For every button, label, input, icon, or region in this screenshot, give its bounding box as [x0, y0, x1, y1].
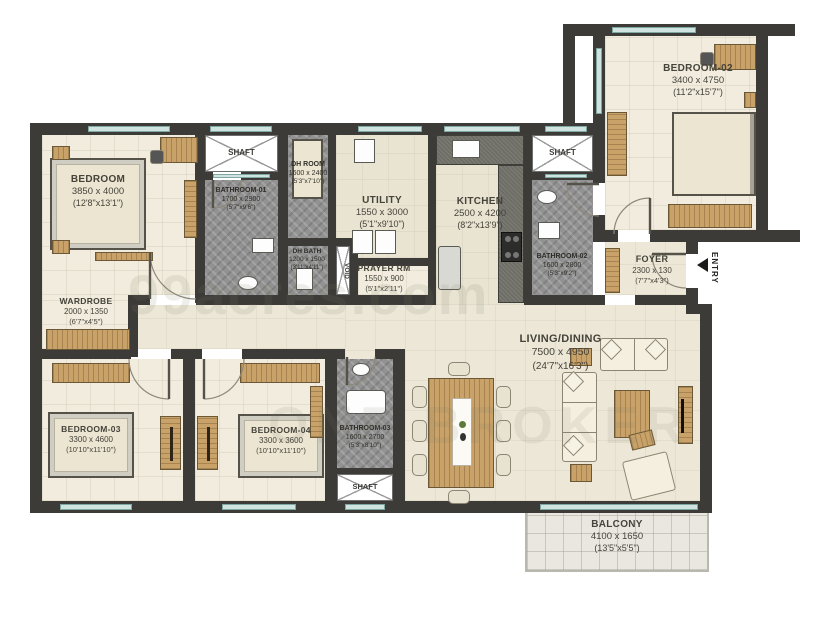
room-dim-mm: 2000 x 1350 — [36, 307, 136, 317]
room-dim-mm: 3300 x 4600 — [50, 435, 132, 445]
toilet — [538, 222, 560, 239]
label-master-bedroom: BEDROOM 3850 x 4000 (12'8"x13'1") — [52, 173, 144, 210]
window — [213, 174, 270, 178]
floor-plan: BEDROOM 3850 x 4000 (12'8"x13'1") WARDRO… — [0, 0, 815, 640]
utility-sink — [352, 230, 373, 254]
sink — [537, 190, 557, 204]
nightstand — [52, 146, 70, 160]
label-utility: UTILITY 1550 x 3000 (5'1"x9'10") — [334, 194, 430, 231]
wall — [283, 238, 350, 246]
wall — [650, 230, 800, 242]
room-dim-mm: 1200 x 1500 — [283, 256, 331, 264]
room-dim-ft: (13'5"x5'5") — [555, 543, 679, 555]
room-name: BEDROOM-03 — [50, 424, 132, 435]
label-living-dining: LIVING/DINING 7500 x 4950 (24'7"x16'3") — [478, 332, 643, 373]
room-dim-ft: (11'2"x15'7") — [638, 87, 758, 99]
room-name: WARDROBE — [36, 296, 136, 307]
table-runner — [452, 398, 472, 466]
room-name: BATHROOM-02 — [529, 252, 595, 261]
window — [88, 126, 170, 132]
window — [596, 48, 602, 114]
wall — [205, 172, 213, 180]
dining-chair — [448, 490, 470, 504]
label-kitchen: KITCHEN 2500 x 4200 (8'2"x13'9") — [436, 195, 524, 232]
label-foyer: FOYER 2300 x 130 (7'7"x4'3") — [614, 254, 690, 286]
dining-chair — [496, 420, 511, 442]
bathtub — [346, 390, 386, 414]
room-dim-ft: (5'3"x8'10") — [334, 442, 396, 450]
label-shaft-s: SHAFT — [337, 482, 393, 491]
wall — [686, 304, 712, 314]
label-prayer-room: PRAYER RM 1550 x 900 (5'1"x2'11") — [338, 263, 430, 294]
room-name: DH ROOM — [284, 160, 332, 169]
room-dim-ft: (5'1"x9'10") — [334, 219, 430, 231]
room-dim-ft: (7'7"x4'3") — [614, 276, 690, 286]
room-dim-mm: 1700 x 2900 — [202, 195, 280, 204]
sink — [252, 238, 274, 253]
window — [210, 126, 272, 132]
kitchen-counter — [436, 135, 524, 165]
room-name: BEDROOM-02 — [638, 62, 758, 75]
dining-chair — [496, 386, 511, 408]
label-dh-bath: DH BATH 1200 x 1500 (3'11"x4'11") — [283, 248, 331, 273]
dining-chair — [496, 454, 511, 476]
room-dim-mm: 4100 x 1650 — [555, 531, 679, 543]
room-dim-ft: (5'1"x2'11") — [338, 284, 430, 294]
wardrobe-cabinet — [52, 363, 130, 383]
desk — [160, 137, 198, 163]
window — [545, 174, 587, 178]
window — [612, 27, 696, 33]
room-name: FOYER — [614, 254, 690, 266]
room-dim-ft: (8'2"x13'9") — [436, 220, 524, 232]
room-name: BEDROOM-04 — [240, 425, 322, 436]
utility-sink — [375, 230, 396, 254]
room-dim-mm: 1550 x 900 — [338, 274, 430, 284]
window — [60, 504, 132, 510]
wall — [756, 24, 768, 242]
room-dim-mm: 3300 x 3600 — [240, 436, 322, 446]
dresser — [668, 204, 752, 228]
room-name: BEDROOM — [52, 173, 144, 186]
dresser — [184, 180, 197, 238]
rug — [95, 252, 153, 261]
wardrobe-cabinet — [197, 416, 218, 470]
wall — [30, 349, 131, 359]
side-table — [570, 464, 592, 482]
dining-chair — [412, 386, 427, 408]
wardrobe-cabinet — [240, 363, 320, 383]
window — [358, 126, 422, 132]
wall — [242, 349, 345, 359]
wall — [196, 295, 436, 305]
room-name: KITCHEN — [436, 195, 524, 208]
room-dim-mm: 1600 x 2800 — [529, 261, 595, 270]
room-name: DH BATH — [283, 248, 331, 256]
window — [545, 126, 587, 132]
label-bedroom-02: BEDROOM-02 3400 x 4750 (11'2"x15'7") — [638, 62, 758, 99]
wall — [635, 295, 698, 305]
wall — [183, 349, 195, 501]
room-dim-mm: 3850 x 4000 — [52, 186, 144, 198]
label-balcony: BALCONY 4100 x 1650 (13'5"x5'5") — [555, 518, 679, 555]
wall — [686, 242, 698, 254]
room-dim-mm: 3400 x 4750 — [638, 75, 758, 87]
room-name: BALCONY — [555, 518, 679, 531]
room-dim-mm: 1600 x 2400 — [284, 169, 332, 178]
room-dim-mm: 7500 x 4950 — [478, 346, 643, 360]
room-dim-mm: 2500 x 4200 — [436, 208, 524, 220]
room-name: BATHROOM-01 — [202, 186, 280, 195]
wall — [593, 215, 605, 242]
balcony-door-window — [540, 504, 698, 510]
room-name: UTILITY — [334, 194, 430, 207]
room-dim-ft: (10'10"x11'10") — [50, 445, 132, 455]
room-dim-ft: (6'7"x4'5") — [36, 317, 136, 327]
room-dim-mm: 1600 x 2700 — [334, 433, 396, 442]
room-dim-mm: 1550 x 3000 — [334, 207, 430, 219]
entry-label: ENTRY — [710, 252, 719, 284]
label-bathroom-02: BATHROOM-02 1600 x 2800 (5'3"x9'2") — [529, 252, 595, 279]
label-shaft-nw: SHAFT — [205, 148, 278, 157]
toilet — [238, 276, 258, 290]
wardrobe-cabinet — [607, 112, 627, 176]
fridge — [438, 246, 461, 290]
window — [444, 126, 520, 132]
wall — [171, 349, 202, 359]
corridor — [136, 305, 345, 349]
dining-chair — [412, 454, 427, 476]
room-name: BATHROOM-03 — [334, 424, 396, 433]
room-dim-mm: 2300 x 130 — [614, 266, 690, 276]
label-dh-room: DH ROOM 1600 x 2400 (5'3"x7'10") — [284, 160, 332, 187]
room-dim-ft: (24'7"x16'3") — [478, 360, 643, 373]
room-dim-ft: (10'10"x11'10") — [240, 446, 322, 456]
room-dim-ft: (12'8"x13'1") — [52, 198, 144, 210]
wardrobe-cabinet — [160, 416, 181, 470]
nightstand — [52, 240, 70, 254]
room-name: LIVING/DINING — [478, 332, 643, 346]
wall — [700, 304, 712, 513]
label-bathroom-01: BATHROOM-01 1700 x 2900 (5'7"x9'6") — [202, 186, 280, 213]
tv-unit — [678, 386, 693, 444]
dining-chair — [412, 420, 427, 442]
entry-arrow-icon — [697, 258, 708, 272]
wall — [375, 349, 405, 359]
room-dim-ft: (3'11"x4'11") — [283, 265, 331, 273]
desk-chair — [150, 150, 164, 164]
label-bathroom-03: BATHROOM-03 1600 x 2700 (5'3"x8'10") — [334, 424, 396, 451]
label-wardrobe: WARDROBE 2000 x 1350 (6'7"x4'5") — [36, 296, 136, 327]
kitchen-sink — [452, 140, 480, 158]
toilet — [352, 363, 370, 376]
washing-machine — [354, 139, 375, 163]
wall — [563, 24, 575, 135]
room-dim-ft: (5'7"x9'6") — [202, 204, 280, 212]
room-dim-ft: (5'3"x7'10") — [284, 178, 332, 186]
window — [222, 504, 296, 510]
wall — [524, 295, 605, 305]
window — [345, 504, 385, 510]
dining-chair — [448, 362, 470, 376]
room-name: PRAYER RM — [338, 263, 430, 274]
hob — [501, 232, 522, 262]
room-dim-ft: (5'3"x9'2") — [529, 270, 595, 278]
wardrobe-cabinet — [46, 329, 130, 350]
label-bedroom-03: BEDROOM-03 3300 x 4600 (10'10"x11'10") — [50, 424, 132, 455]
bed — [672, 112, 756, 196]
label-shaft-ne: SHAFT — [532, 148, 593, 157]
label-bedroom-04: BEDROOM-04 3300 x 3600 (10'10"x11'10") — [240, 425, 322, 456]
